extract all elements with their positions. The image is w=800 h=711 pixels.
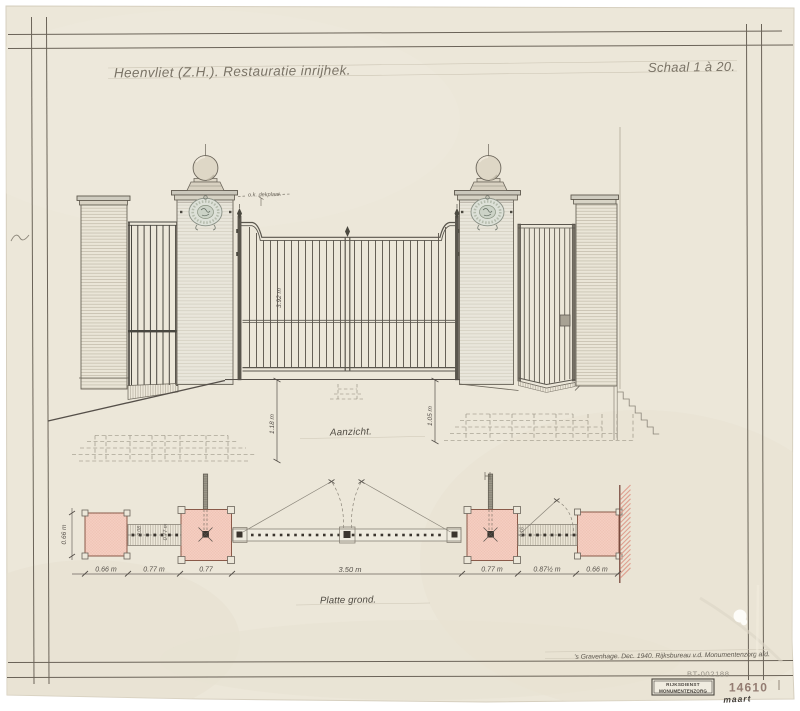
svg-text:3.92 m: 3.92 m (276, 287, 283, 307)
svg-text:1.05 m: 1.05 m (427, 405, 434, 425)
svg-text:0.77 m: 0.77 m (481, 567, 503, 574)
svg-text:RIJKSDIENST: RIJKSDIENST (666, 682, 700, 687)
svg-text:0.08: 0.08 (137, 526, 143, 536)
svg-text:maart: maart (723, 693, 752, 704)
svg-text:Aanzicht.: Aanzicht. (329, 426, 372, 438)
svg-text:1.18 m: 1.18 m (269, 413, 276, 433)
svg-text:14610: 14610 (729, 681, 768, 695)
svg-text:0.77: 0.77 (199, 567, 214, 574)
svg-text:Heenvliet (Z.H.). Restauratie: Heenvliet (Z.H.). Restauratie inrijhek. (114, 63, 351, 81)
svg-text:0.87½ m: 0.87½ m (533, 566, 560, 574)
svg-text:0.66 m: 0.66 m (95, 567, 117, 574)
svg-text:Schaal 1 à 20.: Schaal 1 à 20. (648, 59, 736, 75)
svg-text:Platte grond.: Platte grond. (320, 595, 376, 607)
svg-text:0.66 m: 0.66 m (586, 567, 608, 574)
svg-text:MONUMENTENZORG: MONUMENTENZORG (659, 689, 707, 694)
svg-text:0.16: 0.16 (520, 527, 526, 537)
svg-text:0.66 m: 0.66 m (61, 524, 68, 544)
svg-text:3.50 m: 3.50 m (339, 565, 362, 574)
svg-text:0.77 m: 0.77 m (143, 567, 165, 574)
svg-text:BT-002188: BT-002188 (687, 670, 730, 679)
svg-text:0.77 m: 0.77 m (163, 523, 169, 540)
svg-text:o.k. dekplaat.: o.k. dekplaat. (248, 192, 281, 199)
